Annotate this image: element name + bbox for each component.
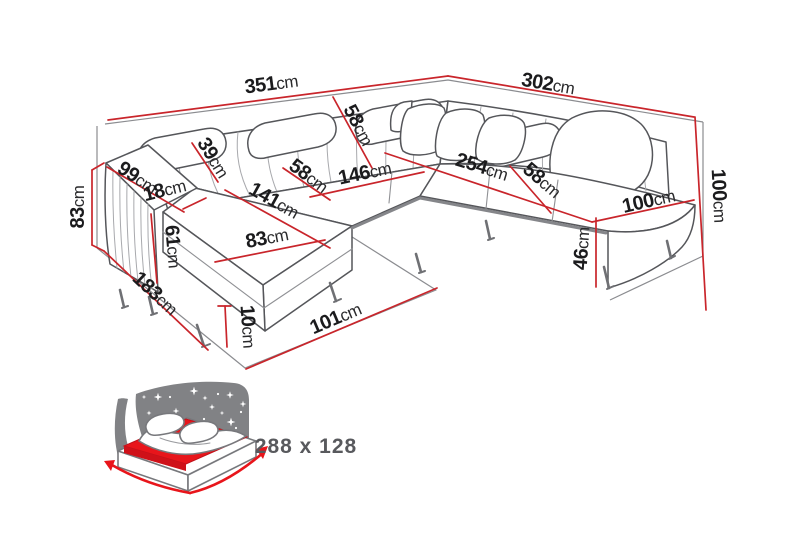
sofa-dimension-diagram: 351cm 302cm 58cm 39cm 99cm 18cm 61cm	[0, 0, 800, 533]
dimension-height-left: 83cm	[67, 163, 104, 251]
svg-text:61cm: 61cm	[160, 224, 186, 269]
dimension-seat-height: 46cm	[570, 218, 596, 287]
svg-text:351cm: 351cm	[243, 70, 299, 99]
svg-text:46cm: 46cm	[570, 226, 595, 271]
svg-text:302cm: 302cm	[520, 69, 577, 100]
svg-text:101cm: 101cm	[307, 298, 365, 339]
sofa-illustration	[105, 99, 695, 347]
bed-size-label: 288 x 128	[255, 435, 357, 458]
sleep-function-icon	[104, 382, 268, 493]
svg-text:83cm: 83cm	[67, 185, 89, 228]
dimension-leg-height: 10cm	[218, 304, 260, 349]
dimension-height-right: 100cm	[695, 117, 731, 310]
svg-text:100cm: 100cm	[707, 168, 732, 223]
svg-text:10cm: 10cm	[236, 304, 261, 349]
